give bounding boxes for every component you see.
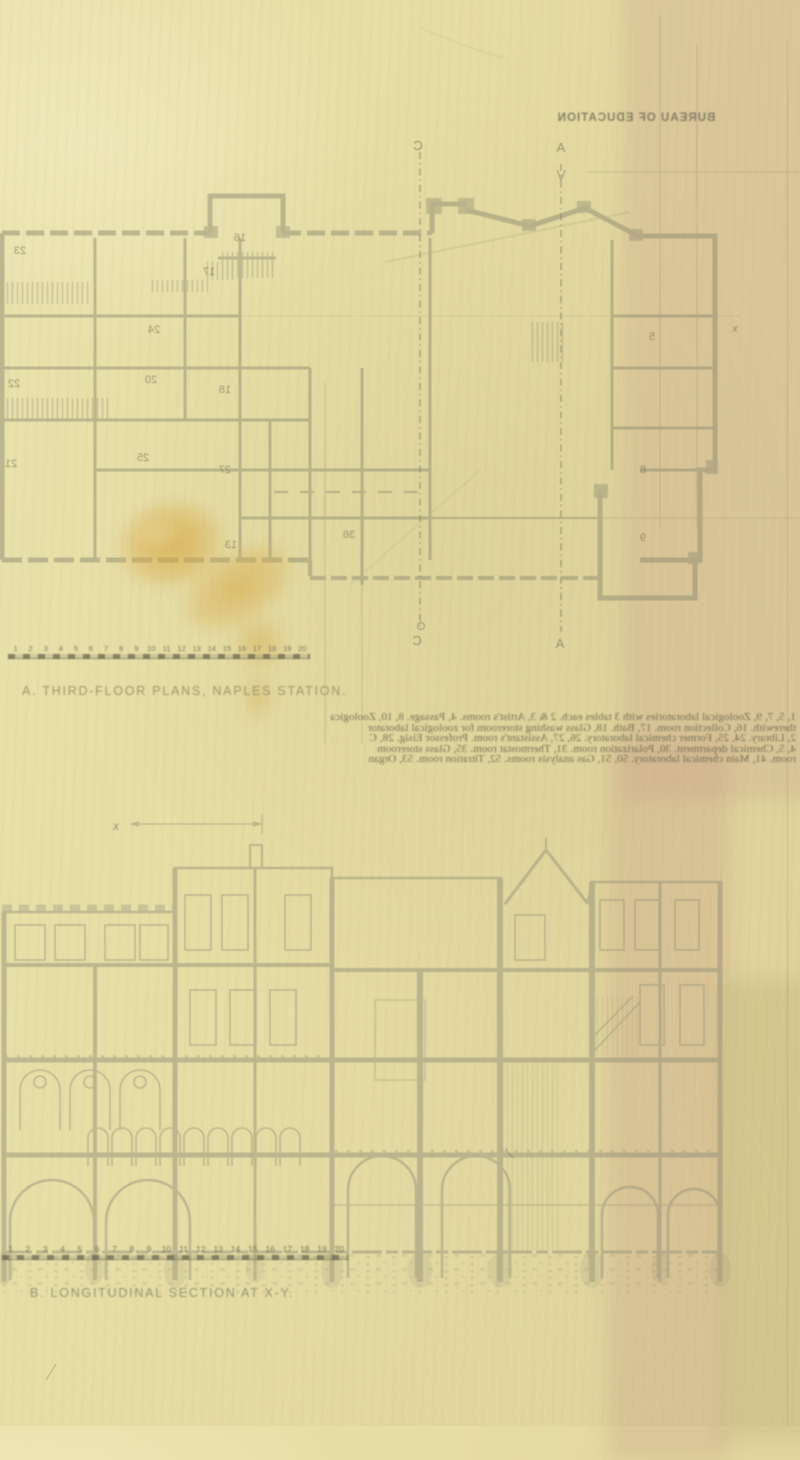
scale-tick: 11: [175, 1244, 192, 1254]
scale-tick: 6: [83, 644, 98, 653]
plan-room-numbers: 231617242022182521271336589: [5, 232, 655, 551]
scale-tick: 13: [189, 644, 204, 653]
room-number: 25: [137, 452, 149, 464]
plan-walls: [2, 196, 718, 598]
scale-tick: 19: [280, 644, 295, 653]
showthrough-paragraph-line: room. 41, Main chemical laboratory. 50, …: [2, 754, 796, 765]
scale-tick: 12: [192, 1244, 209, 1254]
scale-tick: 18: [296, 1244, 313, 1254]
plan-hatched-areas: [4, 252, 564, 420]
stain-highlight: [132, 514, 184, 554]
section-windows: [10, 895, 720, 1280]
scale-tick: 12: [174, 644, 189, 653]
scale-tick: 15: [244, 1244, 261, 1254]
scale-bar-rule: [8, 654, 310, 659]
scale-tick: 10: [158, 1244, 175, 1254]
scale-tick: 5: [71, 1244, 88, 1254]
room-number: 17: [203, 266, 215, 278]
scale-tick: 20: [331, 1244, 348, 1254]
plan-grid-lines: [2, 15, 800, 744]
scale-tick: 3: [37, 1244, 54, 1254]
scale-tick: 16: [234, 644, 249, 653]
scale-tick: 17: [250, 644, 265, 653]
room-number: 23: [14, 245, 26, 257]
scale-tick: 7: [106, 1244, 123, 1254]
paper-crease-line: [787, 40, 788, 1426]
room-number: 8: [640, 464, 646, 476]
scale-tick: 5: [68, 644, 83, 653]
room-number: 20: [145, 374, 157, 386]
scale-tick: 1: [8, 644, 23, 653]
section-drawing: [0, 814, 731, 1296]
floor-plan-drawing: [2, 15, 800, 744]
scale-tick: 8: [123, 1244, 140, 1254]
scale-tick: 1: [2, 1244, 19, 1254]
section-masonry-hatch: [500, 996, 638, 1250]
scale-tick: 7: [99, 644, 114, 653]
scale-tick: 17: [279, 1244, 296, 1254]
svg-text:x: x: [731, 323, 738, 335]
svg-text:A: A: [557, 140, 566, 155]
room-number: 9: [640, 532, 646, 544]
showthrough-paragraph-line: 1, 5, 7, 9, Zoological laboratories with…: [2, 712, 796, 723]
scale-tick: 16: [261, 1244, 278, 1254]
scale-tick: 2: [19, 1244, 36, 1254]
scale-tick: 8: [114, 644, 129, 653]
plan-scale-bar: 1234567891011121314151617181920: [8, 644, 310, 659]
section-roofline: [2, 838, 722, 912]
room-number: 5: [649, 331, 655, 343]
scale-tick: 4: [54, 1244, 71, 1254]
scale-tick: 14: [204, 644, 219, 653]
scale-tick: 18: [265, 644, 280, 653]
section-scale-bar: 1234567891011121314151617181920: [2, 1244, 348, 1260]
section-dimension-line: [130, 814, 262, 834]
scale-tick: 11: [159, 644, 174, 653]
scale-tick: 3: [38, 644, 53, 653]
scale-tick: 9: [129, 644, 144, 653]
svg-text:A: A: [556, 636, 565, 651]
showthrough-header-text: BUREAU OF EDUCATION: [551, 112, 721, 124]
svg-text:C: C: [413, 138, 422, 153]
plan-caption: A. THIRD-FLOOR PLANS, NAPLES STATION.: [22, 684, 347, 698]
room-number: 36: [343, 529, 355, 541]
scale-tick: 2: [23, 644, 38, 653]
scale-tick: 13: [210, 1244, 227, 1254]
section-piers: [4, 868, 720, 1282]
scale-tick: 20: [295, 644, 310, 653]
scale-tick: 9: [140, 1244, 157, 1254]
room-number: 22: [8, 378, 20, 390]
showthrough-paragraph: 1, 5, 7, 9, Zoological laboratories with…: [2, 712, 796, 765]
plan-section-markers: C A C A x: [412, 138, 738, 651]
scale-tick: 14: [227, 1244, 244, 1254]
section-dimension-label: x: [112, 819, 120, 833]
scale-tick: 6: [88, 1244, 105, 1254]
svg-text:x: x: [112, 819, 120, 833]
scale-bar-rule: [2, 1255, 348, 1260]
room-number: 18: [219, 384, 231, 396]
room-number: 24: [148, 324, 160, 336]
scale-tick: 19: [313, 1244, 330, 1254]
room-number: 27: [219, 464, 231, 476]
section-caption: B. LONGITUDINAL SECTION AT X-Y.: [30, 1286, 294, 1300]
scale-bar-numbers: 1234567891011121314151617181920: [8, 644, 310, 653]
scale-tick: 4: [53, 644, 68, 653]
room-number: 21: [5, 458, 17, 470]
scale-tick: 10: [144, 644, 159, 653]
scanned-plate-page: { "document": { "showthrough_header": "B…: [0, 0, 800, 1426]
room-number: 16: [234, 232, 246, 244]
svg-text:C: C: [412, 633, 421, 648]
scale-tick: 15: [219, 644, 234, 653]
scale-bar-numbers: 1234567891011121314151617181920: [2, 1244, 348, 1254]
